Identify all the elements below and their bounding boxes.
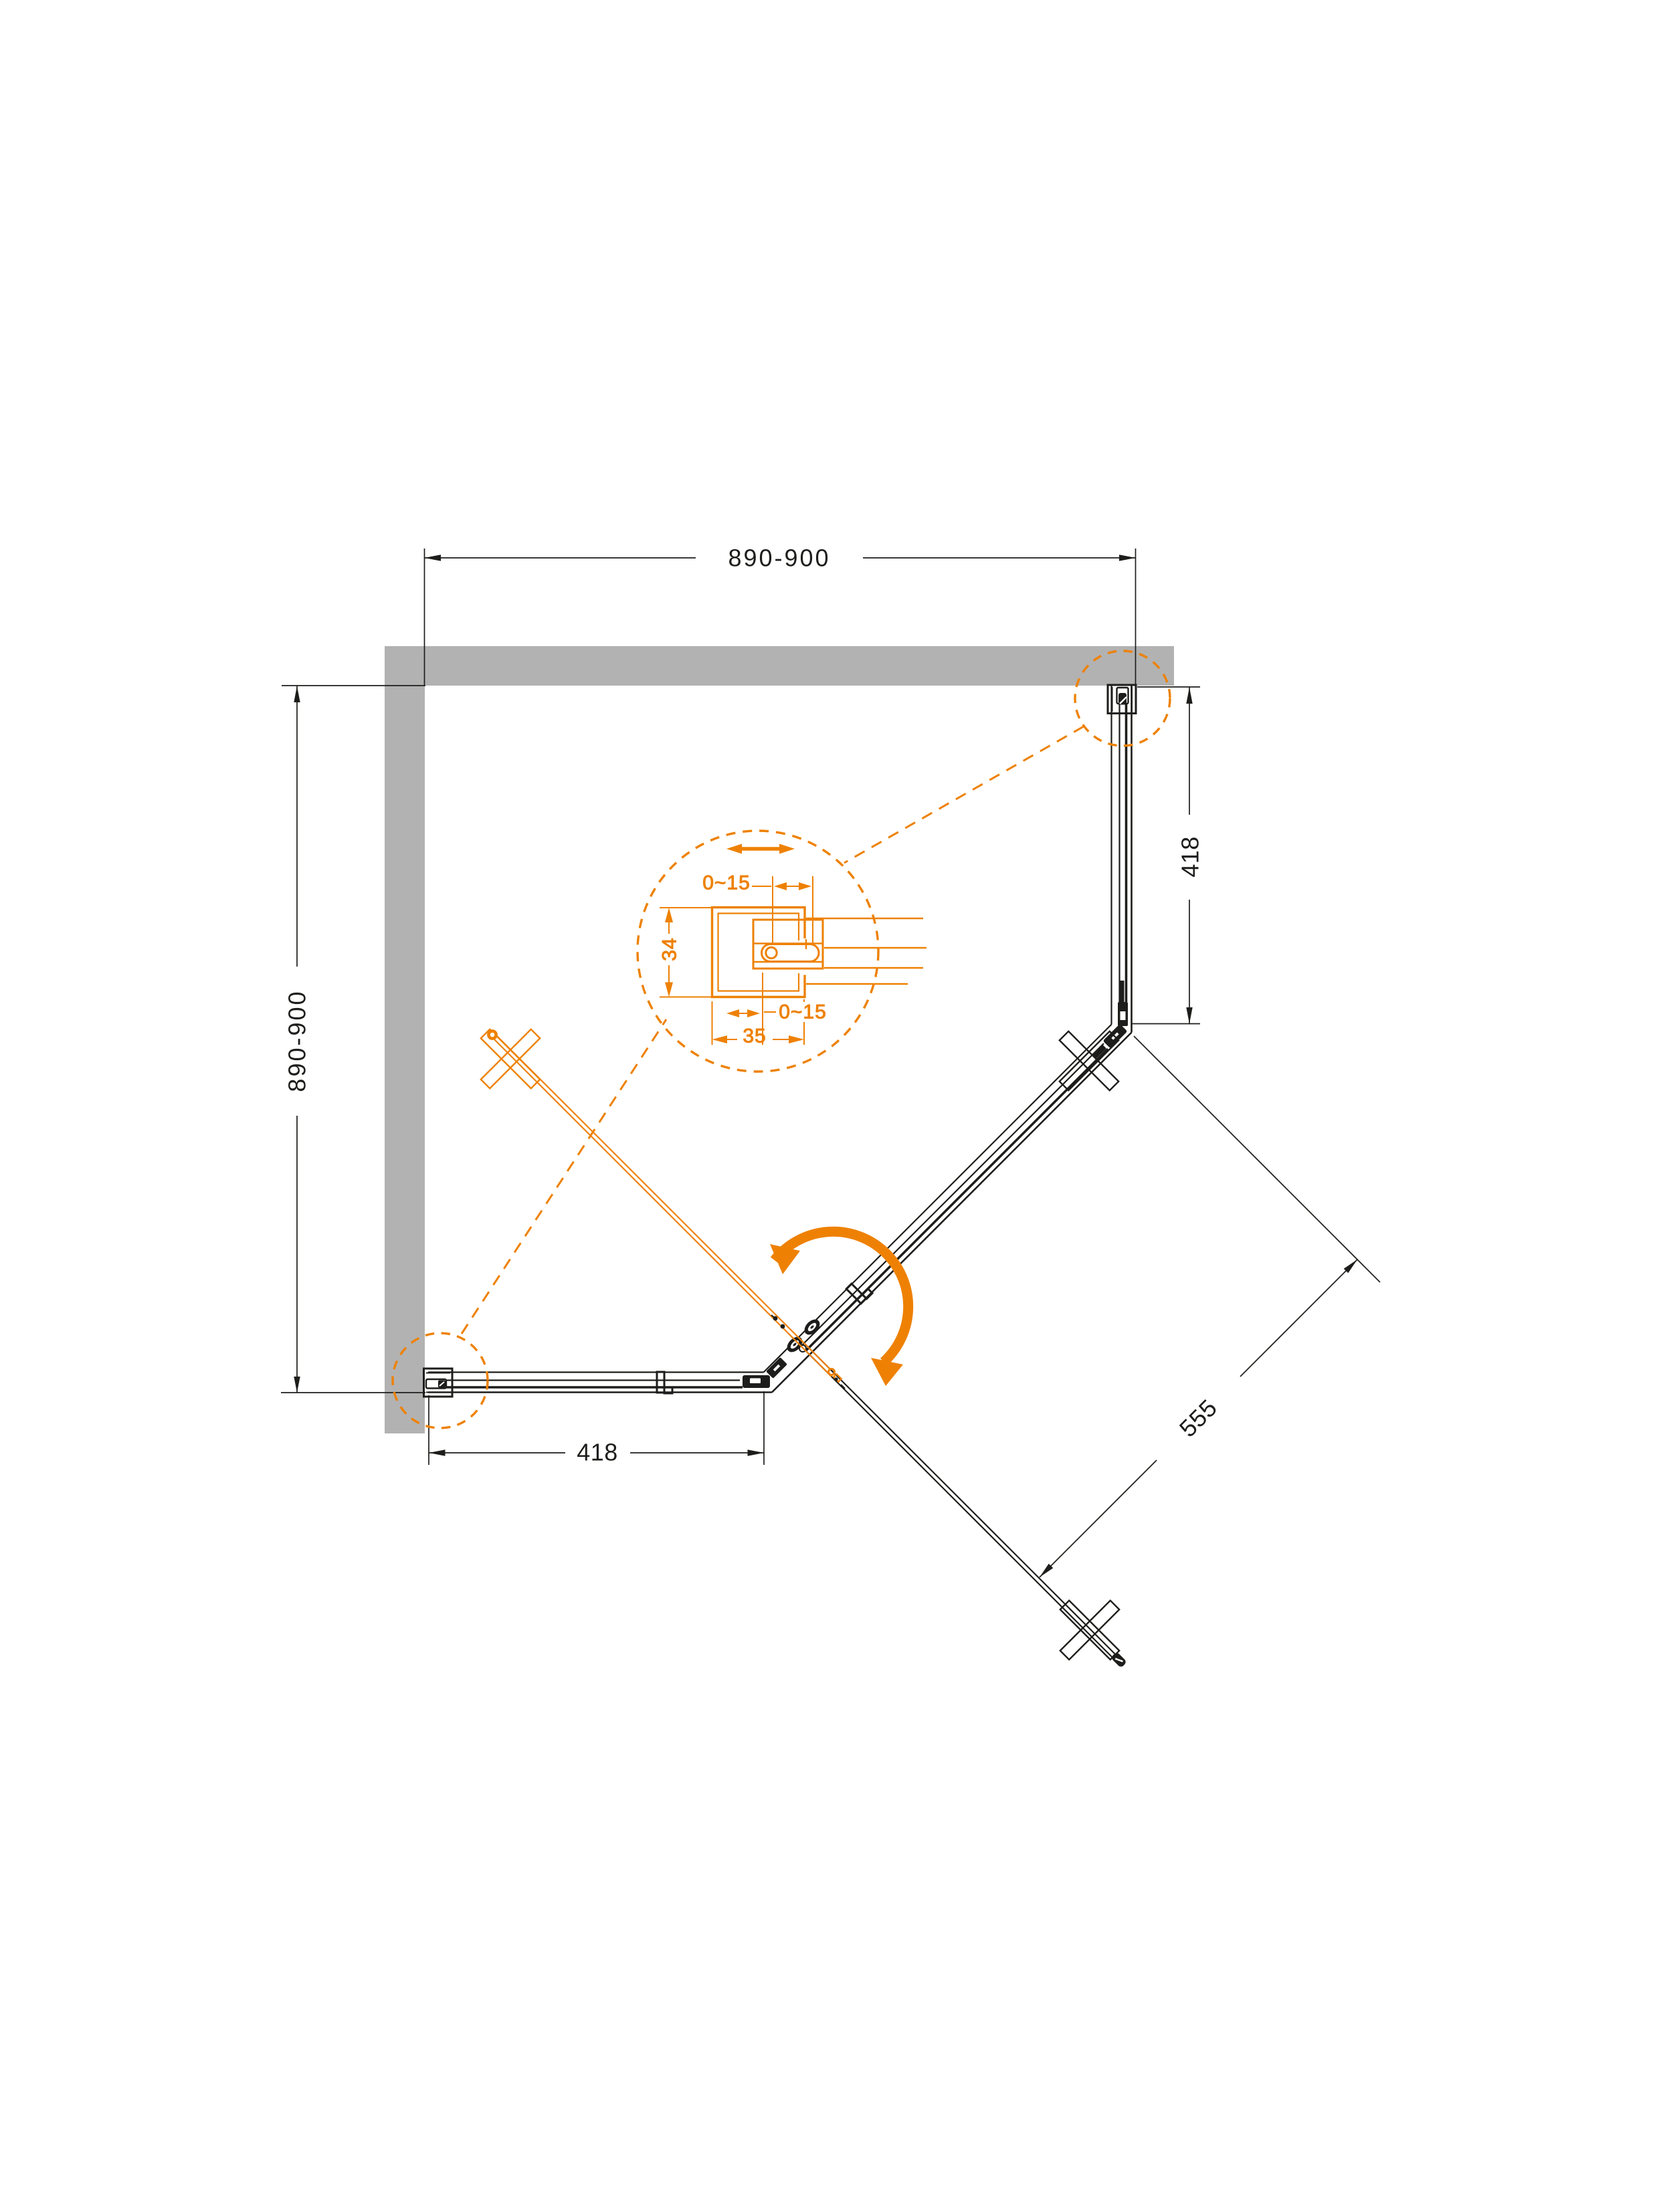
svg-text:0~15: 0~15 bbox=[779, 1001, 827, 1023]
svg-text:35: 35 bbox=[743, 1025, 766, 1047]
svg-text:890-900: 890-900 bbox=[284, 989, 311, 1092]
svg-text:890-900: 890-900 bbox=[728, 544, 830, 572]
svg-text:418: 418 bbox=[1177, 836, 1204, 878]
svg-text:34: 34 bbox=[659, 937, 681, 961]
svg-text:0~15: 0~15 bbox=[702, 872, 751, 894]
svg-text:418: 418 bbox=[577, 1439, 618, 1466]
